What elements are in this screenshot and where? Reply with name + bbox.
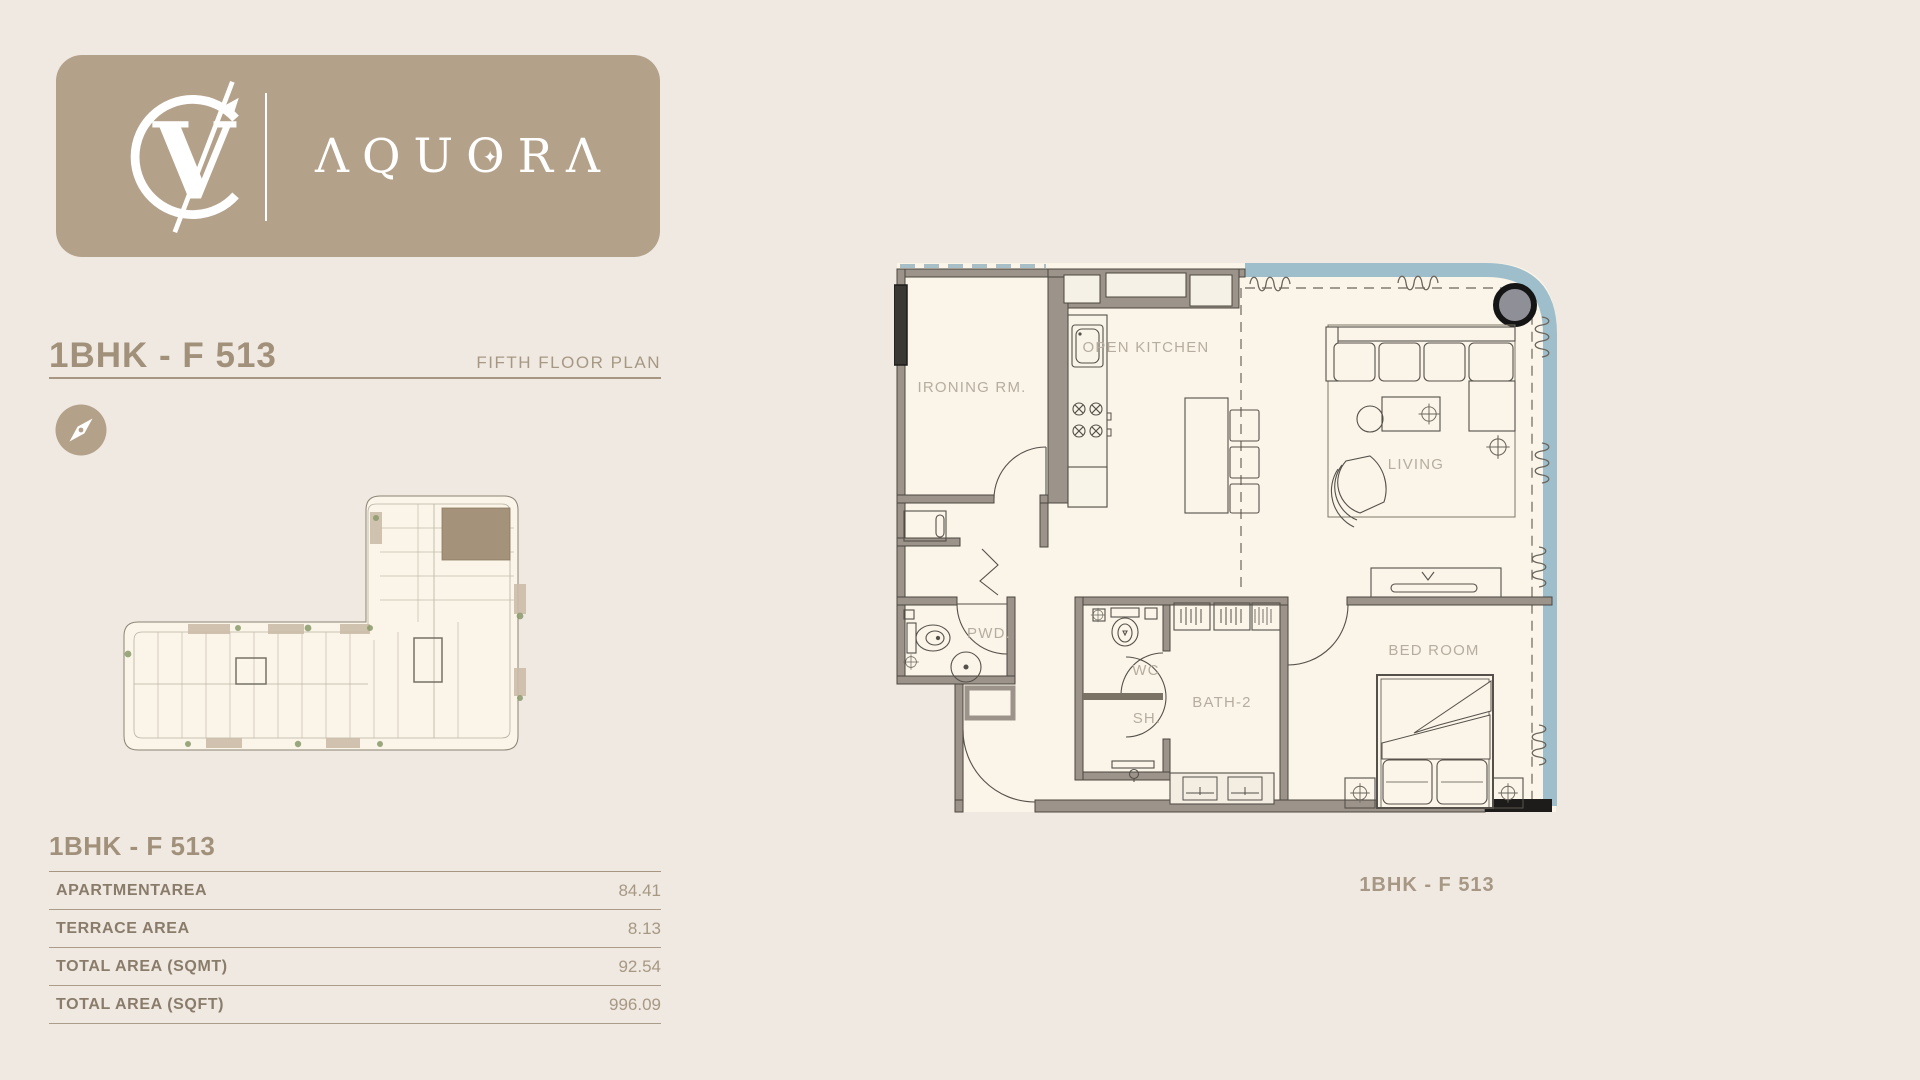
area-row-label: TOTAL AREA (SQMT): [49, 958, 228, 976]
table-row: TOTAL AREA (SQMT) 92.54: [49, 948, 661, 986]
window: [894, 285, 907, 365]
area-row-value: 8.13: [628, 919, 661, 939]
bottom-dark-wall: [1485, 799, 1552, 812]
area-table-title: 1BHK - F 513: [49, 831, 661, 872]
area-row-label: APARTMENTAREA: [49, 882, 207, 900]
svg-text:V: V: [152, 100, 237, 224]
key-plan-highlighted-unit: [442, 508, 510, 560]
logo-divider: [265, 93, 267, 221]
area-row-value: 996.09: [609, 995, 661, 1015]
plan-caption: 1BHK - F 513: [1327, 874, 1527, 897]
area-row-value: 84.41: [618, 881, 661, 901]
table-row: TERRACE AREA 8.13: [49, 910, 661, 948]
unit-floor-plan: IRONING RM. OPEN KITCHEN LIVING PWD. WC …: [894, 263, 1560, 815]
table-row: APARTMENTAREA 84.41: [49, 872, 661, 910]
room-label-powder: PWD.: [967, 625, 1011, 642]
room-label-bath: BATH-2: [1192, 694, 1251, 711]
brand-name: ΛQUO✦RΛ: [294, 55, 634, 257]
vanity: [1170, 773, 1274, 804]
wc-divider: [1083, 693, 1163, 700]
area-table: 1BHK - F 513 APARTMENTAREA 84.41 TERRACE…: [49, 831, 661, 1024]
area-row-label: TOTAL AREA (SQFT): [49, 996, 224, 1014]
room-label-wc: WC: [1132, 662, 1159, 679]
shaft: [967, 688, 1013, 718]
vc-monogram-icon: V: [114, 77, 274, 237]
bed: [1377, 675, 1493, 808]
column: [1496, 286, 1534, 324]
room-label-living: LIVING: [1388, 456, 1444, 473]
key-plan: [118, 488, 542, 760]
brand-logo-card: V ΛQUO✦RΛ: [56, 55, 660, 257]
room-label-ironing: IRONING RM.: [917, 379, 1026, 396]
compass-icon: [55, 404, 107, 456]
room-label-shower: SH.: [1133, 710, 1162, 727]
page-title: 1BHK - F 513: [49, 336, 277, 376]
table-row: TOTAL AREA (SQFT) 996.09: [49, 986, 661, 1024]
room-label-bedroom: BED ROOM: [1388, 642, 1479, 659]
area-row-value: 92.54: [618, 957, 661, 977]
room-label-kitchen: OPEN KITCHEN: [1083, 339, 1210, 356]
title-underline: [49, 377, 661, 379]
page-subtitle: FIFTH FLOOR PLAN: [300, 353, 661, 373]
area-row-label: TERRACE AREA: [49, 920, 190, 938]
